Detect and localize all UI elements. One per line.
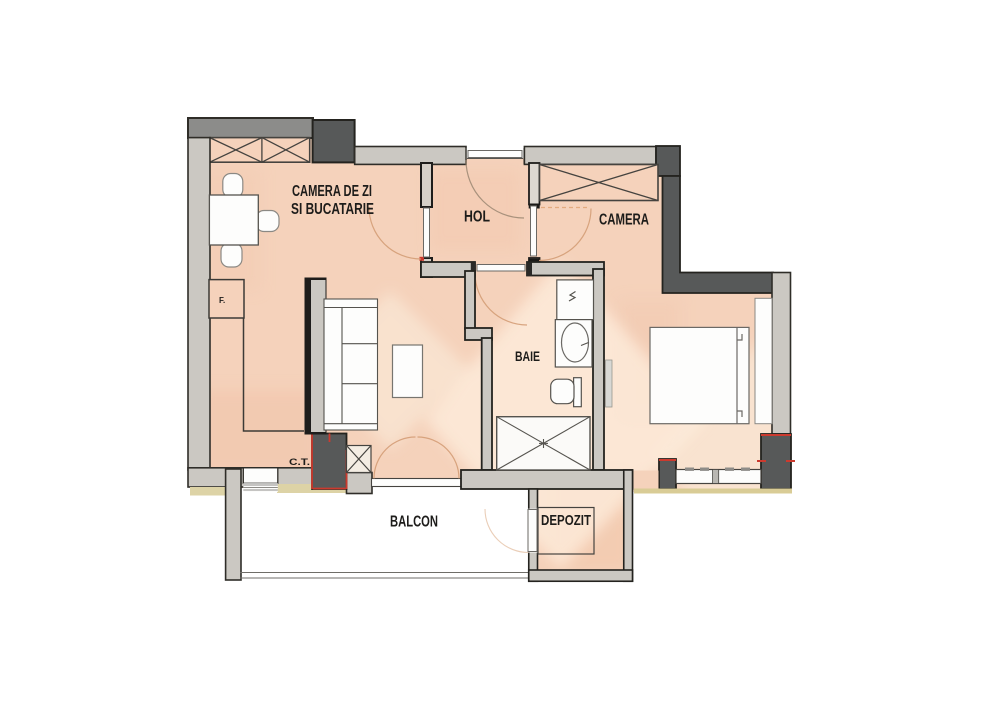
svg-text:HOL: HOL — [464, 209, 490, 226]
svg-text:BALCON: BALCON — [390, 514, 438, 531]
svg-text:BAIE: BAIE — [515, 348, 540, 364]
svg-text:C.T.: C.T. — [289, 457, 310, 467]
svg-text:CAMERA: CAMERA — [599, 212, 649, 229]
svg-text:CAMERA DE ZI: CAMERA DE ZI — [292, 183, 372, 200]
svg-text:DEPOZIT: DEPOZIT — [541, 512, 591, 529]
svg-text:SI BUCATARIE: SI BUCATARIE — [291, 201, 374, 218]
svg-text:F.: F. — [219, 296, 225, 305]
